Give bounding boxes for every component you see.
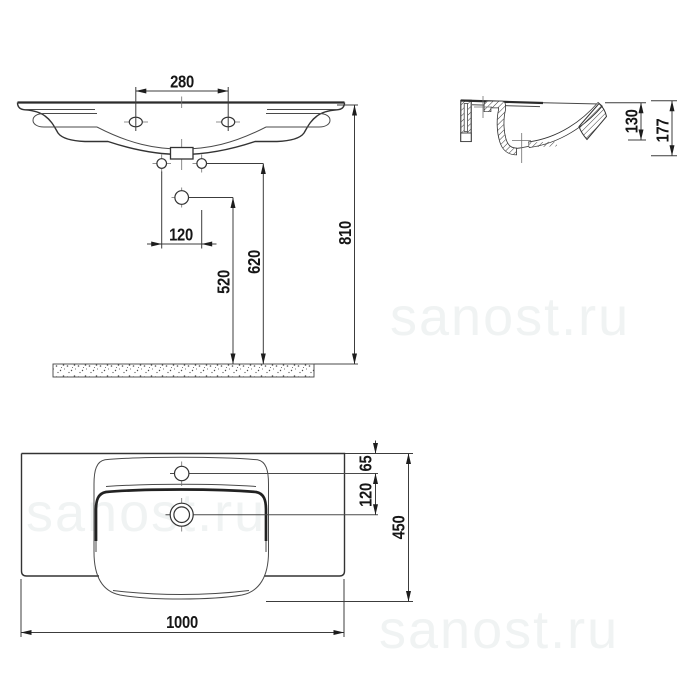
wall-slot <box>464 104 467 132</box>
dim-label-65: 65 <box>356 455 376 471</box>
basin-outer-profile <box>18 103 345 155</box>
deck-recess-left <box>33 114 97 128</box>
trap-hatch <box>488 105 517 152</box>
watermark-text: sanost.ru <box>390 287 630 347</box>
dim-label-1000: 1000 <box>166 613 198 633</box>
dim-label-810: 810 <box>336 221 356 245</box>
dim-label-520: 520 <box>214 270 234 294</box>
back-edge-line <box>543 103 600 104</box>
watermark-text: sanost.ru <box>26 483 266 543</box>
dim-label-177: 177 <box>653 118 673 142</box>
fixing-hole-right <box>197 159 207 169</box>
dim-label-120-plan: 120 <box>356 483 376 507</box>
siphon-hole <box>175 191 189 205</box>
floor-hatch-band <box>53 364 314 377</box>
dim-label-450: 450 <box>389 515 409 539</box>
dimension-layer: 280 120 520 620 810 130 177 65 <box>21 72 677 637</box>
deck-recess-right <box>266 114 330 128</box>
technical-drawing: sanost.ru sanost.ru sanost.ru <box>0 0 700 700</box>
wall-foot <box>461 133 471 142</box>
tap-hole <box>175 466 189 480</box>
dim-label-120: 120 <box>169 225 193 245</box>
dim-label-130: 130 <box>622 109 642 133</box>
bowl-bottom-connect <box>516 146 529 148</box>
rim-inner-line <box>472 105 540 107</box>
dim-label-280: 280 <box>170 72 194 92</box>
dim-label-620: 620 <box>244 250 264 274</box>
watermark-text: sanost.ru <box>379 600 619 660</box>
bowl-wall-hatch <box>529 144 557 145</box>
fixing-hole-left <box>157 159 167 169</box>
basin-inner-bottom <box>113 591 249 595</box>
drain-outlet-box <box>171 148 194 160</box>
side-section-view <box>461 96 607 163</box>
